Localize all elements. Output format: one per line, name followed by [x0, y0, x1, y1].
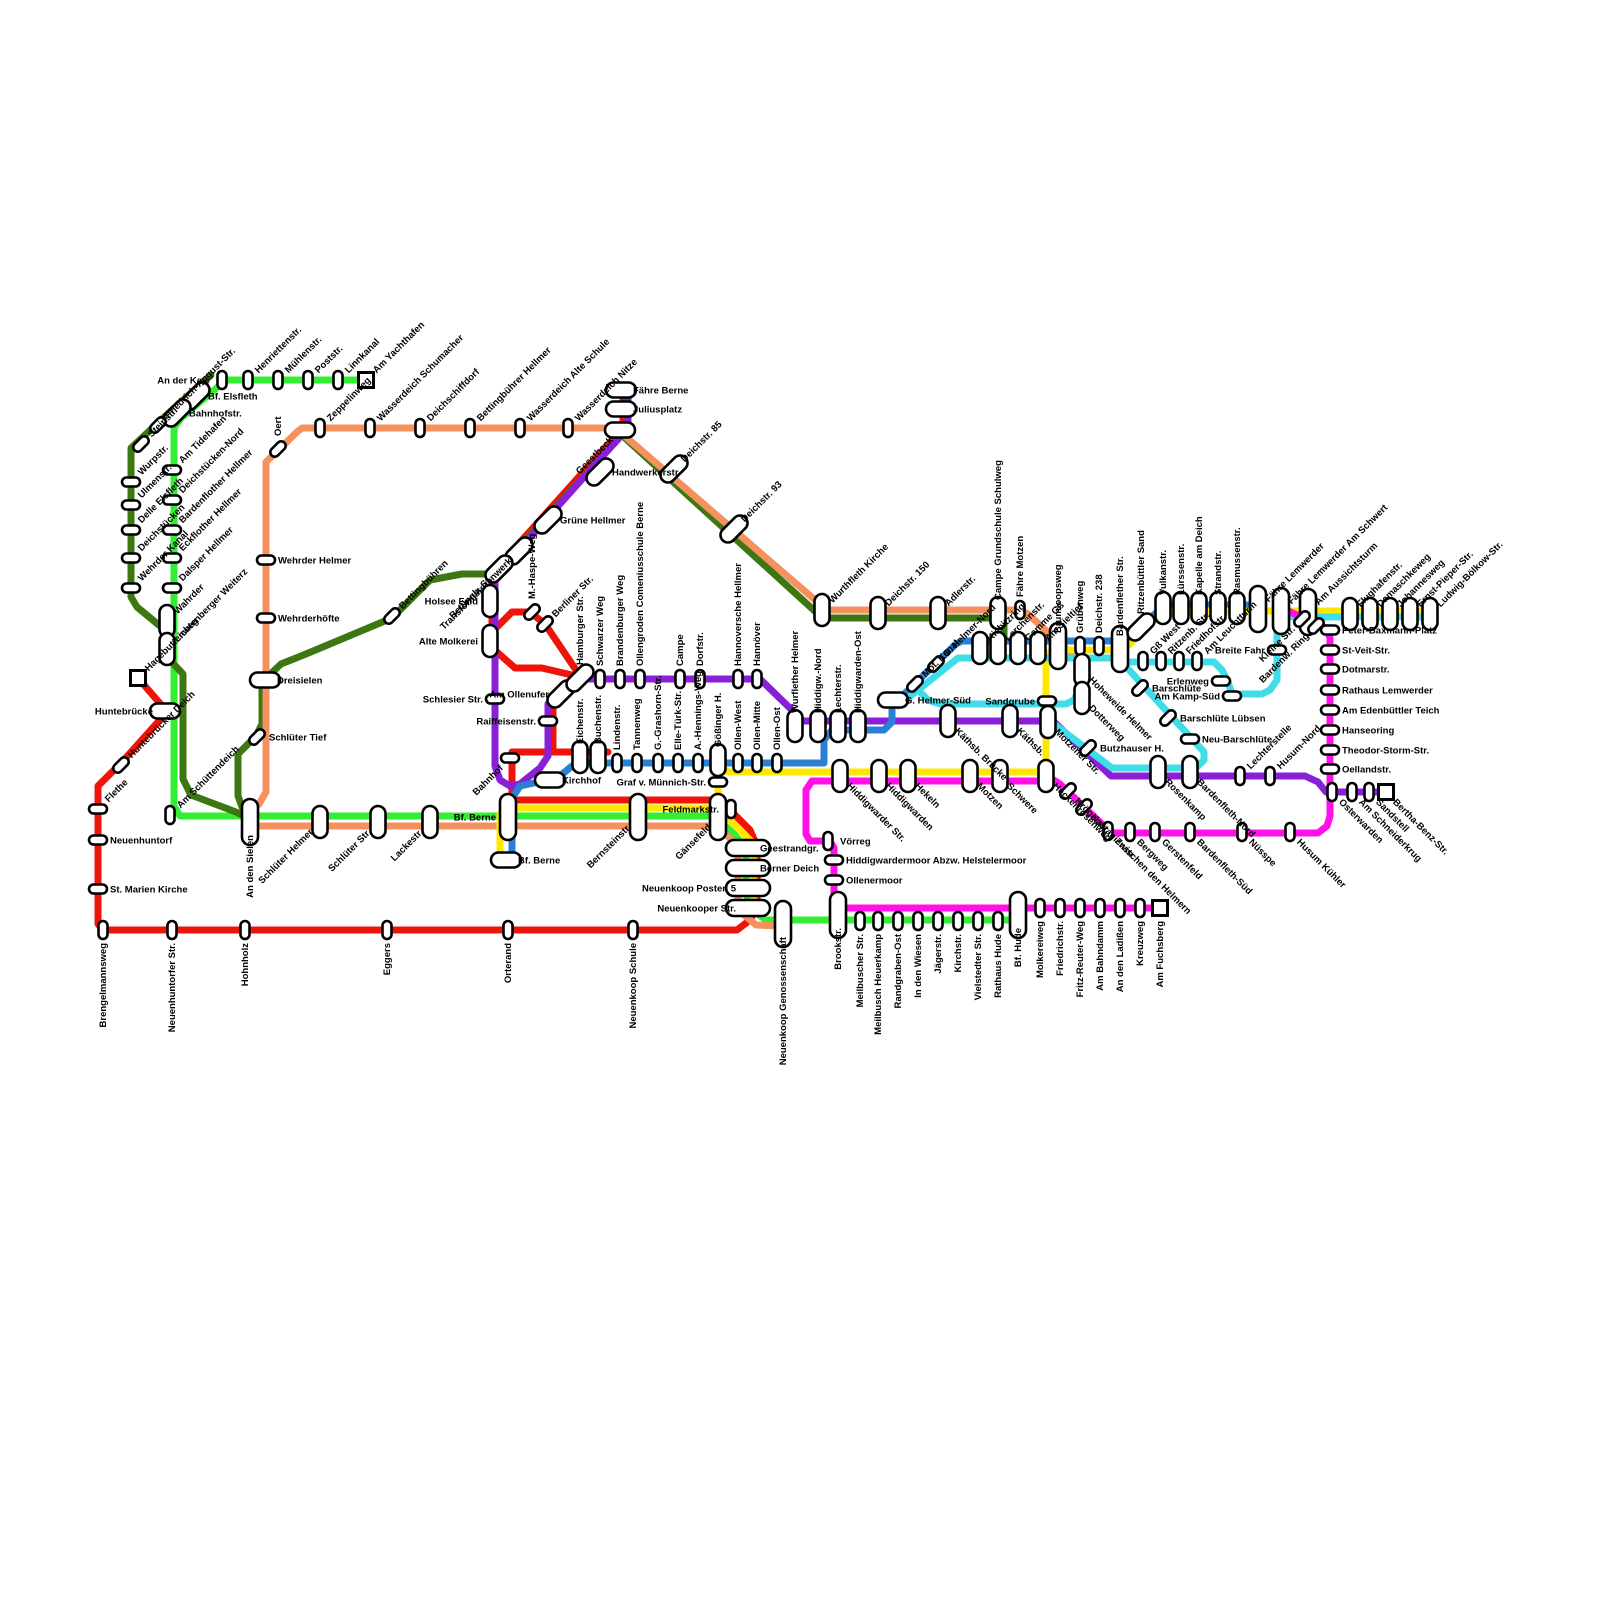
label-oellandstr: Oellandstr. — [1342, 765, 1391, 776]
station-rathaus-lemwerder — [1321, 686, 1339, 695]
label-ollengroden-comeniusschule-berne: Ollengroden Comeniusschule Berne — [635, 502, 646, 666]
station-deichstr-238 — [1095, 637, 1104, 655]
label-ollen-ost: Ollen-Ost — [772, 706, 783, 750]
label-a-hennings-weg: A.-Hennings-Weg — [693, 671, 704, 750]
station-schwarzer-weg — [596, 670, 605, 688]
label-bf-elsfleth: Bf. Elsfleth — [208, 392, 258, 403]
label-hann-ver: Hannöver — [752, 622, 763, 666]
station-theodor-storm-str — [1321, 746, 1339, 755]
station-poststr — [304, 371, 313, 389]
station-g-helmer-s-d — [878, 693, 908, 708]
label-kreuzweg: Kreuzweg — [1135, 921, 1146, 966]
station-an-der-kaje — [218, 371, 227, 389]
label-f-hre-berne: Fähre Berne — [633, 386, 688, 397]
station-hann-ver — [753, 670, 762, 688]
station-wurflether-helmer — [788, 710, 803, 742]
station-neuenhuntorf — [89, 836, 107, 845]
station-hiddigwarden-ost — [851, 710, 866, 742]
label-fritz-reuter-weg: Fritz-Reuter-Weg — [1075, 921, 1086, 998]
station-wasserdeich-schumacher — [366, 419, 375, 437]
station-a-hennings-weg — [694, 754, 703, 772]
station-peter-baxmann-platz — [1321, 626, 1339, 635]
station-lechterstelle — [1236, 767, 1245, 785]
station-molkereiweg — [1036, 899, 1045, 917]
label-berner-deich: Berner Deich — [760, 864, 819, 875]
station-g-nsefeld — [710, 794, 726, 840]
station-st-marien-kirche — [89, 885, 107, 894]
station-brandenburger-weg — [616, 670, 625, 688]
station-vielstedter-str — [974, 912, 983, 930]
label-kirchstr: Kirchstr. — [953, 934, 964, 973]
station-dalsper-hellmer — [163, 584, 181, 593]
label-ollen-mitte: Ollen-Mitte — [752, 701, 763, 750]
label-vielstedter-str: Vielstedter Str. — [973, 934, 984, 1000]
label-ollenermoor: Ollenermoor — [846, 876, 903, 887]
label-lindenstr: Lindenstr. — [612, 705, 623, 750]
label-m-haspe-weg: M.-Haspe-Weg — [527, 534, 538, 599]
station-tannenweg — [633, 754, 642, 772]
label-in-den-wiesen: In den Wiesen — [913, 934, 924, 998]
station-alte-molkerei — [483, 625, 498, 657]
station-ollengroden-comeniusschule-berne — [636, 670, 645, 688]
label-an-den-ladi-en: An den Ladißen — [1115, 921, 1126, 992]
station-hiddigw-nord — [811, 710, 826, 742]
station-st-veit-str — [1321, 646, 1339, 655]
label-j-gerstr: Jägerstr. — [933, 934, 944, 974]
label-holsee-feld: Holsee Feld — [425, 597, 479, 608]
label-huntebr-cke: Huntebrücke — [95, 707, 153, 718]
station-g-inger-h — [711, 744, 726, 776]
station-friedhofstr — [1175, 652, 1184, 670]
label-juliusplatz: Juliusplatz — [633, 405, 682, 416]
label-barschl-te: Barschlüte — [1152, 684, 1201, 695]
label-neuenhuntorfer-str: Neuenhuntorfer Str. — [167, 943, 178, 1032]
station-husum-nord — [1266, 767, 1275, 785]
label-randgraben-ost: Randgraben-Ost — [893, 933, 904, 1008]
station-v-rreg — [824, 832, 833, 850]
label-meilbusch-heuerkamp: Meilbusch Heuerkamp — [873, 934, 884, 1035]
label-oert: Oert — [273, 416, 284, 436]
label-am-edenb-ttler-teich: Am Edenbüttler Teich — [1342, 706, 1440, 717]
label-orterand: Orterand — [503, 943, 514, 983]
station-hannoversche-hellmer — [734, 670, 743, 688]
label-friedrichstr: Friedrichstr. — [1055, 921, 1066, 976]
station-am-kamp-s-d — [1223, 692, 1241, 701]
label-neuenkooper-str: Neuenkooper Str. — [657, 904, 736, 915]
station-wasserdeich-nitze — [564, 419, 573, 437]
label-v-rreg: Vörreg — [840, 837, 871, 848]
station-schl-ter-helmer — [313, 806, 328, 838]
station-bardenfleth-s-d — [1186, 823, 1195, 841]
station-randgraben-ost — [894, 912, 903, 930]
label-dorfstr: Dorfstr. — [695, 632, 706, 666]
station-hanseoring — [1321, 726, 1339, 735]
station-gerstenfeld — [1151, 823, 1160, 841]
station-husum-k-hler — [1286, 823, 1295, 841]
station-bahnhof — [501, 754, 519, 763]
station-g-grashorn-str — [654, 754, 663, 772]
label-neuenkoop-schule: Neuenkoop Schule — [628, 943, 639, 1029]
label-buchenstr: Buchenstr. — [593, 695, 604, 744]
station-am-fuchsberg — [1153, 901, 1168, 916]
label-handwerkerstr: Handwerkerstr. — [612, 468, 681, 479]
station-oellandstr — [1321, 765, 1339, 774]
label-molkereiweg: Molkereiweg — [1035, 921, 1046, 978]
station-m-hlenstr — [274, 371, 283, 389]
label-rasmussenstr: Rasmussenstr. — [1232, 527, 1243, 595]
station-am-leuchtturm — [1193, 652, 1202, 670]
label-tannenweg: Tannenweg — [632, 698, 643, 750]
label-neuenkoop-posten-5: Neuenkoop Posten 5 — [642, 884, 737, 895]
station-bf-berne — [491, 853, 521, 868]
label-hiddigwarden-ost: Hiddigwarden-Ost — [853, 630, 864, 713]
station-ollen-west — [734, 754, 743, 772]
station-juliusplatz — [606, 402, 636, 417]
label-bahnhofstr: Bahnhofstr. — [189, 409, 242, 420]
label-bf-berne: Bf. Berne — [454, 813, 496, 824]
label-brandenburger-weg: Brandenburger Weg — [615, 575, 626, 666]
station-erlenweg — [1212, 677, 1230, 686]
station-wehrderh-fte — [257, 614, 275, 623]
label-bf-berne: Bf. Berne — [518, 856, 560, 867]
station-ulmenstr — [122, 501, 140, 510]
station-brengelmannsweg — [99, 921, 108, 939]
label-hiddigw-nord: Hiddigw.-Nord — [813, 648, 824, 713]
label-am-bahndamm: Am Bahndamm — [1095, 921, 1106, 991]
station-henriettenstr — [244, 371, 253, 389]
label-brookstr: Brookstr. — [833, 928, 844, 970]
label-st-marien-kirche: St. Marien Kirche — [110, 885, 188, 896]
station-lindenstr — [613, 754, 622, 772]
label-schwarzer-weg: Schwarzer Weg — [595, 596, 606, 666]
label-g-inger-h: Gößinger H. — [713, 693, 724, 747]
label-neuenkoop-genossenschaft: Neuenkoop Genossenschaft — [778, 936, 789, 1065]
label-wehrderh-fte: Wehrderhöfte — [278, 614, 340, 625]
station-friedrichstr — [1056, 899, 1065, 917]
label-kapelle-am-deich: Kapelle am Deich — [1194, 516, 1205, 595]
station-linnkanal — [334, 371, 343, 389]
station-buchenstr — [591, 741, 606, 773]
station-graf-v-m-nnich-str — [709, 778, 727, 787]
label-brengelmannsweg: Brengelmannsweg — [98, 943, 109, 1028]
station-ollenermoor — [825, 876, 843, 885]
label-kirchhof: Kirchhof — [562, 776, 602, 787]
station-hiddigwardermoor-abzw-helstelermoor — [825, 856, 843, 865]
station-l-rssenstr — [1174, 592, 1189, 624]
label-hohnholz: Hohnholz — [240, 943, 251, 987]
label-elle-t-rk-str: Elle-Türk-Str. — [673, 691, 684, 750]
station-ritzenb-str — [1157, 652, 1166, 670]
label-wehrder-helmer: Wehrder Helmer — [278, 556, 352, 567]
label-dreisielen: Dreisielen — [277, 676, 323, 687]
station-neuenkoop-schule — [629, 921, 638, 939]
label-campe: Campe — [675, 634, 686, 666]
station-am-bahndamm — [1096, 899, 1105, 917]
label-neu-barschl-te: Neu-Barschlüte — [1202, 735, 1272, 746]
station-g-west — [1139, 652, 1148, 670]
station-deichschiffdorf — [416, 419, 425, 437]
station-gr-benweg — [1076, 637, 1085, 655]
station-am-sch-ttendeich — [166, 806, 175, 824]
label-sandgrube: Sandgrube — [985, 697, 1035, 708]
station-wehrder-kanal — [122, 584, 140, 593]
label-am-ollenufer: Am Ollenufer — [489, 690, 549, 701]
station-hagebuttenweg — [131, 671, 146, 686]
transit-map-canvas: HagebuttenwegHuntebrückeHuntebrücker Dei… — [0, 0, 1600, 1600]
station-wasserdeich-alte-schule — [516, 419, 525, 437]
station-kreuzweg — [1136, 899, 1145, 917]
station-an-den-ladi-en — [1116, 899, 1125, 917]
station-elle-t-rk-str — [674, 754, 683, 772]
label-lechterstr: Lechterstr. — [833, 664, 844, 713]
label-ritzenb-ttler-sand: Ritzenbüttler Sand — [1136, 530, 1147, 614]
station-kirchstr — [954, 912, 963, 930]
label-f-hre-motzen: Fähre Motzen — [1015, 536, 1026, 597]
station-meilbuscher-str — [856, 912, 865, 930]
station-am-schneiderkrug — [1348, 783, 1357, 801]
station-bernsteinstr — [630, 794, 646, 840]
label-deichstr-238: Deichstr. 238 — [1094, 574, 1105, 633]
station-flethe — [89, 805, 107, 814]
station-neu-barschl-te — [1181, 735, 1199, 744]
station-neuenhuntorfer-str — [168, 921, 177, 939]
label-geestrandgr: Geestrandgr. — [760, 844, 819, 855]
label-vulkanstr: Vulkanstr. — [1158, 550, 1169, 595]
label-dotmarstr: Dotmarstr. — [1342, 665, 1390, 676]
station-bf-berne — [500, 794, 516, 840]
label-an-den-sielen: An den Sielen — [245, 835, 256, 898]
label-hamburger-str: Hamburger Str. — [575, 596, 586, 665]
station-kirchhof — [535, 773, 565, 788]
label-gr-benweg: Grübenweg — [1075, 581, 1086, 633]
label-neuenhuntorf: Neuenhuntorf — [110, 836, 173, 847]
label-l-rssenstr: Lürssenstr. — [1176, 544, 1187, 595]
label-graf-v-m-nnich-str: Graf v. Münnich-Str. — [616, 778, 706, 789]
station-am-edenb-ttler-teich — [1321, 706, 1339, 715]
label-hanseoring: Hanseoring — [1342, 726, 1394, 737]
station-meilbusch-heuerkamp — [874, 912, 883, 930]
station-eggers — [383, 921, 392, 939]
station-osterwarden — [1328, 783, 1337, 801]
label-campe-grundschule-schulweg: Campe Grundschule Schulweg — [993, 460, 1004, 600]
label-st-veit-str: St-Veit-Str. — [1342, 646, 1390, 657]
label-bardenflether-str: Bardenflether Str. — [1115, 556, 1126, 636]
label-rathaus-lemwerder: Rathaus Lemwerder — [1342, 686, 1433, 697]
station-bergweg — [1126, 823, 1135, 841]
station-in-den-wiesen — [914, 912, 923, 930]
label-schlesier-str: Schlesier Str. — [423, 695, 483, 706]
label-hannoversche-hellmer: Hannoversche Hellmer — [733, 563, 744, 666]
label-rathaus-hude: Rathaus Hude — [993, 934, 1004, 998]
station-dotmarstr — [1321, 665, 1339, 674]
station-eichenstr — [573, 741, 588, 773]
station-campe — [676, 670, 685, 688]
station-wehrder-helmer — [257, 556, 275, 565]
station-j-gerstr — [934, 912, 943, 930]
station-delle-elsfleth — [122, 526, 140, 535]
label-hiddigwardermoor-abzw-helstelermoor: Hiddigwardermoor Abzw. Helstelermoor — [846, 856, 1027, 867]
station-feldmarkstr — [727, 800, 736, 818]
station-ollen-ost — [773, 754, 782, 772]
label-am-fuchsberg: Am Fuchsberg — [1155, 921, 1166, 988]
label-bf-hude: Bf. Hude — [1013, 928, 1024, 967]
station-zeppelinweg — [316, 419, 325, 437]
label-meilbuscher-str: Meilbuscher Str. — [855, 934, 866, 1007]
label-g-grashorn-str: G.-Grashorn-Str. — [653, 676, 664, 750]
label-gr-ne-hellmer: Grüne Hellmer — [560, 516, 626, 527]
station-fritz-reuter-weg — [1076, 899, 1085, 917]
station-dreisielen — [250, 673, 280, 688]
station-wurpstr — [122, 478, 140, 487]
label-g-helmer-s-d: G. Helmer-Süd — [905, 696, 971, 707]
label-feldmarkstr: Feldmarkstr. — [663, 805, 720, 816]
station-geestbeck — [605, 423, 635, 438]
label-strandstr: Strandstr. — [1213, 551, 1224, 595]
label-raiffeisenstr: Raiffeisenstr. — [476, 717, 536, 728]
label-brumloopsweg: Brumloopsweg — [1053, 564, 1064, 633]
station-ollen-mitte — [753, 754, 762, 772]
station-deichst-cken — [122, 554, 140, 563]
station-vulkanstr — [1156, 592, 1171, 624]
label-eggers: Eggers — [382, 943, 393, 975]
label-eichenstr: Eichenstr. — [575, 699, 586, 744]
station-bettingb-hrer-hellmer — [466, 419, 475, 437]
label-barschl-te-l-bsen: Barschlüte Lübsen — [1180, 714, 1266, 725]
station-raiffeisenstr — [539, 717, 557, 726]
label-ollen-west: Ollen-West — [733, 700, 744, 750]
station-hohnholz — [241, 921, 250, 939]
station-schl-ter-str — [371, 806, 386, 838]
station-sandgrube — [1038, 697, 1056, 706]
label-theodor-storm-str: Theodor-Storm-Str. — [1342, 746, 1429, 757]
label-peter-baxmann-platz: Peter-Baxmann-Platz — [1342, 626, 1437, 637]
station-rathaus-hude — [994, 912, 1003, 930]
label-schl-ter-tief: Schlüter Tief — [269, 733, 327, 744]
station-lechterstr — [831, 710, 846, 742]
label-butzhauser-h: Butzhauser H. — [1100, 744, 1164, 755]
label-wurflether-helmer: Wurflether Helmer — [790, 631, 801, 713]
label-alte-molkerei: Alte Molkerei — [419, 637, 478, 648]
transit-map-svg: HagebuttenwegHuntebrückeHuntebrücker Dei… — [0, 0, 1600, 1600]
station-lackestr — [423, 806, 438, 838]
station-orterand — [504, 921, 513, 939]
